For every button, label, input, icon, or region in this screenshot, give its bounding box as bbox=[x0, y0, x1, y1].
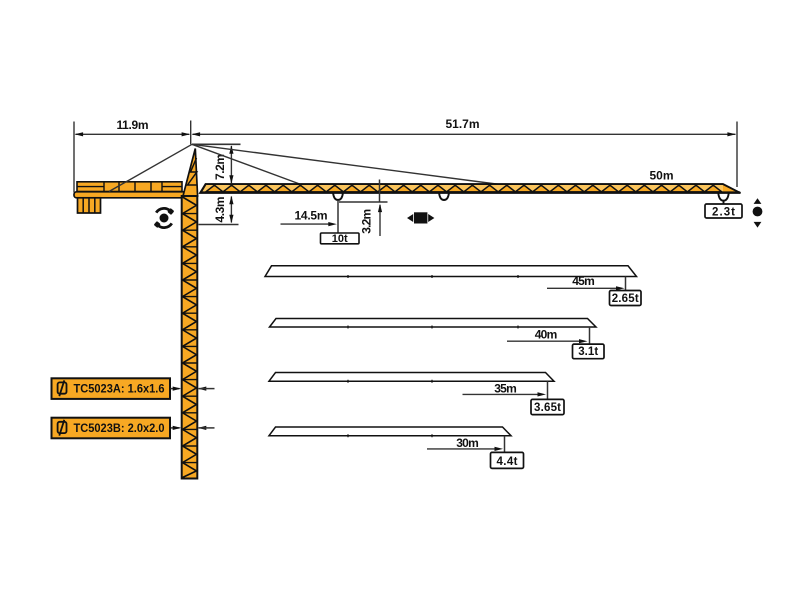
svg-text:3.2m: 3.2m bbox=[360, 209, 374, 234]
svg-text:11.9m: 11.9m bbox=[117, 118, 149, 132]
svg-text:4.3m: 4.3m bbox=[213, 197, 227, 223]
svg-text:2.3t: 2.3t bbox=[712, 206, 735, 218]
svg-text:3.1t: 3.1t bbox=[578, 346, 598, 358]
svg-text:TC5023B: 2.0x2.0: TC5023B: 2.0x2.0 bbox=[74, 421, 165, 435]
svg-text:TC5023A: 1.6x1.6: TC5023A: 1.6x1.6 bbox=[74, 382, 165, 396]
svg-text:14.5m: 14.5m bbox=[295, 209, 328, 223]
svg-text:30m: 30m bbox=[456, 436, 479, 450]
svg-text:3.65t: 3.65t bbox=[534, 402, 561, 414]
svg-text:45m: 45m bbox=[572, 274, 595, 288]
svg-text:10t: 10t bbox=[332, 233, 348, 245]
svg-text:50m: 50m bbox=[650, 169, 674, 183]
svg-text:35m: 35m bbox=[494, 381, 517, 395]
svg-text:40m: 40m bbox=[535, 328, 558, 342]
svg-text:4.4t: 4.4t bbox=[497, 456, 518, 468]
svg-text:2.65t: 2.65t bbox=[612, 293, 639, 305]
svg-text:51.7m: 51.7m bbox=[446, 117, 480, 131]
svg-text:7.2m: 7.2m bbox=[213, 154, 227, 180]
